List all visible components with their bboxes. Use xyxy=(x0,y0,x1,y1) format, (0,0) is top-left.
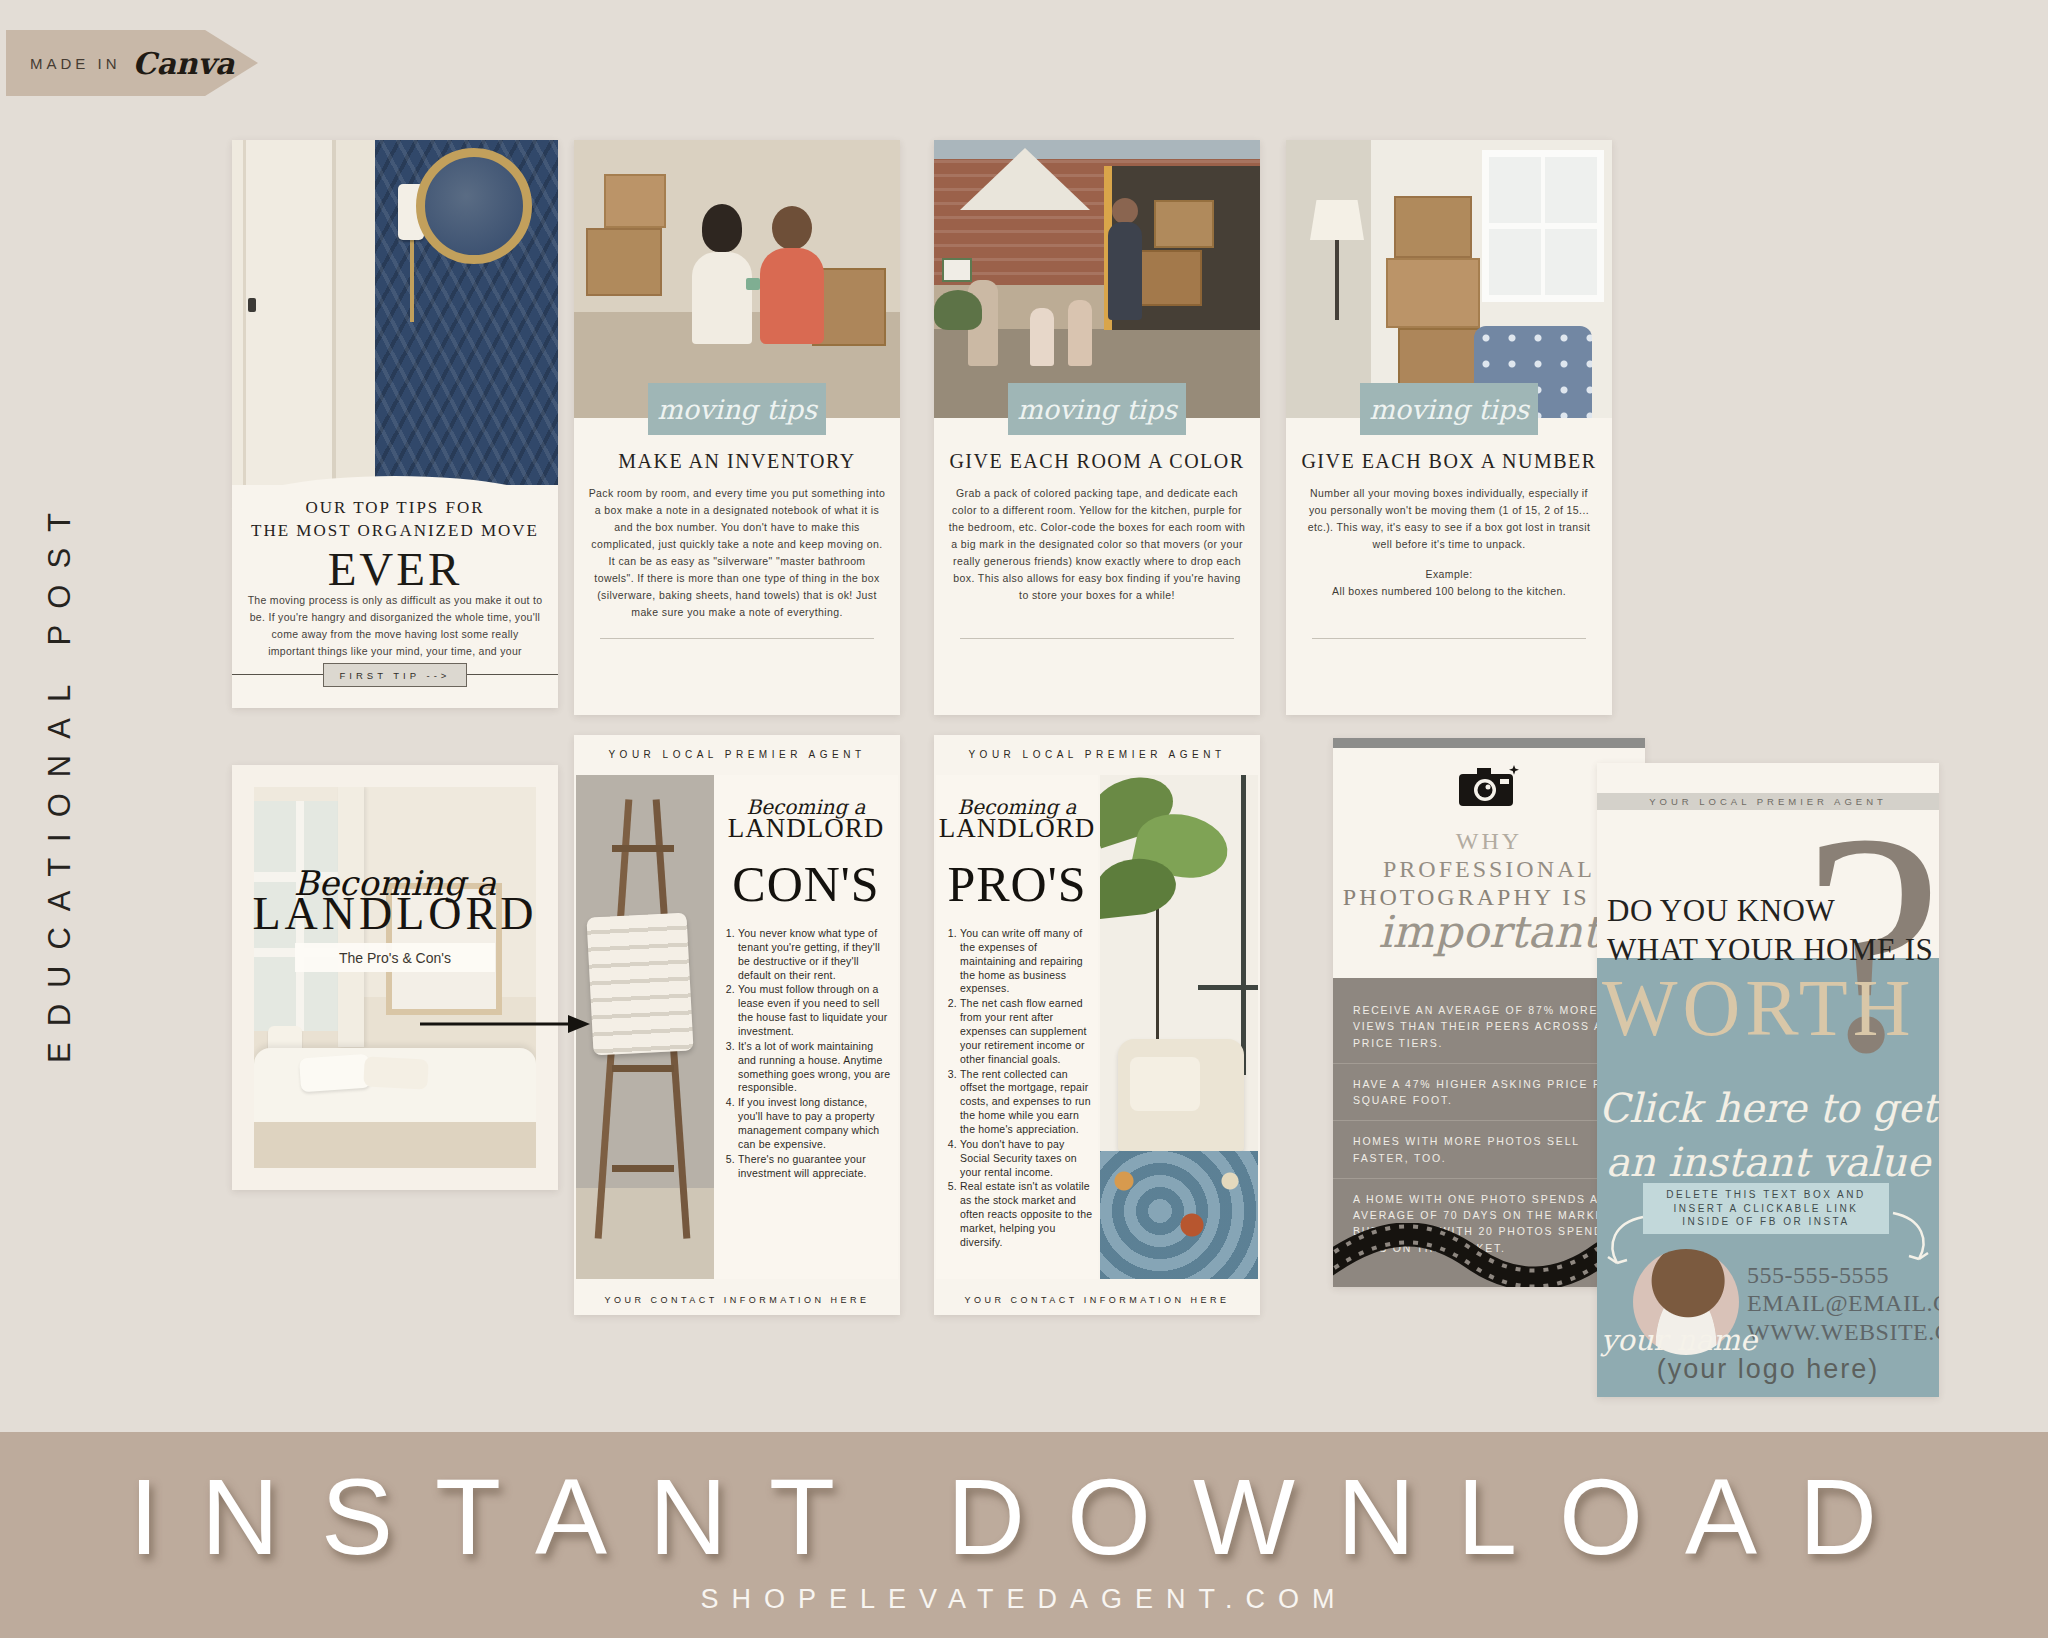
clickable-link-note: DELETE THIS TEXT BOX AND INSERT A CLICKA… xyxy=(1643,1183,1889,1234)
note-line2: INSERT A CLICKABLE LINK xyxy=(1645,1202,1887,1216)
agent-email: EMAIL@EMAIL.COM xyxy=(1747,1289,1939,1317)
note-line3: INSIDE OF FB OR INSTA xyxy=(1645,1215,1887,1229)
card-landlord-pros: YOUR LOCAL PREMIER AGENT Becoming a LAND… xyxy=(934,735,1260,1315)
card-landlord-cons: YOUR LOCAL PREMIER AGENT Becoming a LAND… xyxy=(574,735,900,1315)
striped-blanket-shape xyxy=(586,912,693,1055)
person-shape xyxy=(1112,198,1138,224)
tip-heading: MAKE AN INVENTORY xyxy=(574,450,900,473)
list-item: You don't have to pay Social Security ta… xyxy=(960,1138,1094,1180)
list-item: You must follow through on a lease even … xyxy=(738,983,894,1038)
educational-post-label: EDUCATIONAL POST xyxy=(20,375,100,1185)
couple-moving-photo xyxy=(574,140,900,418)
ladder-rung xyxy=(612,1165,674,1172)
cons-text-panel: Becoming a LANDLORD CON'S You never know… xyxy=(714,775,898,1279)
living-room-photo xyxy=(1100,775,1258,1279)
sconce-rod xyxy=(410,236,414,322)
example-label: Example: xyxy=(1300,566,1598,583)
your-name-script: your name xyxy=(1599,1323,1759,1357)
list-item: It's a lot of work maintaining and runni… xyxy=(738,1040,894,1095)
becoming-a-script: Becoming a xyxy=(232,863,558,903)
right-arrow-icon xyxy=(420,1013,590,1035)
pros-text-panel: Becoming a LANDLORD PRO'S You can write … xyxy=(936,775,1098,1279)
cushion-shape xyxy=(1130,1057,1200,1111)
card-box-number: moving tips GIVE EACH BOX A NUMBER Numbe… xyxy=(1286,140,1612,715)
pros-heading: PRO'S xyxy=(936,855,1098,913)
card-title-line2: THE MOST ORGANIZED MOVE xyxy=(232,521,558,541)
card-landlord-cover: Becoming a LANDLORD The Pro's & Con's xyxy=(232,765,558,1190)
ladder-rung xyxy=(612,845,674,852)
patterned-rug-shape xyxy=(1100,1151,1258,1279)
list-item: Real estate isn't as volatile as the sto… xyxy=(960,1180,1094,1249)
divider-line xyxy=(600,638,874,639)
box-shape xyxy=(604,174,666,228)
lamp-pole xyxy=(1335,240,1339,320)
list-item: There's no guarantee your investment wil… xyxy=(738,1153,894,1181)
tip-body-text: Grab a pack of colored packing tape, and… xyxy=(948,485,1246,604)
pros-cons-subtitle: The Pro's & Con's xyxy=(295,943,495,972)
agent-phone: 555-555-5555 xyxy=(1747,1261,1939,1289)
round-gold-mirror xyxy=(416,148,532,264)
card-home-worth: YOUR LOCAL PREMIER AGENT ? DO YOU KNOW W… xyxy=(1597,763,1939,1397)
window-frame xyxy=(1241,775,1246,1075)
premier-agent-header: YOUR LOCAL PREMIER AGENT xyxy=(934,749,1260,760)
mug-shape xyxy=(746,278,760,290)
person-shape xyxy=(1068,300,1092,366)
contact-info-footer: YOUR CONTACT INFORMATION HERE xyxy=(574,1295,900,1305)
pillow-shape xyxy=(363,1056,428,1089)
divider-line xyxy=(1312,638,1586,639)
cons-heading: CON'S xyxy=(714,855,898,913)
card-room-color: moving tips GIVE EACH ROOM A COLOR Grab … xyxy=(934,140,1260,715)
bush-shape xyxy=(934,290,982,330)
person-shape xyxy=(772,206,812,250)
contact-info-footer: YOUR CONTACT INFORMATION HERE xyxy=(934,1295,1260,1305)
curly-arrow-icon xyxy=(1601,1211,1647,1269)
person-shape xyxy=(1030,308,1054,366)
note-line1: DELETE THIS TEXT BOX AND xyxy=(1645,1188,1887,1202)
tip-body-block: Number all your moving boxes individuall… xyxy=(1300,485,1598,600)
door-knob-shape xyxy=(248,298,256,312)
person-shape xyxy=(1108,222,1142,320)
box-shape xyxy=(1132,250,1202,306)
cta-script-line1[interactable]: Click here to get xyxy=(1597,1085,1939,1131)
box-shape xyxy=(1394,196,1472,258)
agent-website: WWW.WEBSITE.COM xyxy=(1747,1318,1939,1346)
interior-photo xyxy=(232,140,558,485)
premier-agent-header: YOUR LOCAL PREMIER AGENT xyxy=(574,749,900,760)
person-shape xyxy=(702,204,742,252)
instant-download-title: INSTANT DOWNLOAD xyxy=(0,1454,2048,1579)
instant-download-bar: INSTANT DOWNLOAD SHOPELEVATEDAGENT.COM xyxy=(0,1432,2048,1638)
cons-list: You never know what type of tenant you'r… xyxy=(722,927,894,1181)
becoming-a-script: Becoming a xyxy=(936,795,1098,819)
door-shape xyxy=(232,140,375,485)
list-item: The net cash flow earned from your rent … xyxy=(960,997,1094,1066)
plant-stem xyxy=(1156,895,1159,1055)
moving-tips-badge: moving tips xyxy=(648,383,826,435)
pros-list: You can write off many of the expenses o… xyxy=(944,927,1094,1251)
example-text: All boxes numbered 100 belong to the kit… xyxy=(1300,583,1598,600)
card-organized-move: OUR TOP TIPS FOR THE MOST ORGANIZED MOVE… xyxy=(232,140,558,708)
agent-contact-block: 555-555-5555 EMAIL@EMAIL.COM WWW.WEBSITE… xyxy=(1747,1261,1939,1346)
made-in-label: MADE IN xyxy=(30,55,121,72)
tip-heading: GIVE EACH ROOM A COLOR xyxy=(934,450,1260,473)
card-make-inventory: moving tips MAKE AN INVENTORY Pack room … xyxy=(574,140,900,715)
moving-tips-badge: moving tips xyxy=(1360,383,1538,435)
list-item: The rent collected can offset the mortga… xyxy=(960,1068,1094,1137)
sold-sign-shape xyxy=(942,258,972,282)
person-shape xyxy=(692,252,752,344)
box-shape xyxy=(1154,200,1214,248)
ladder-rung xyxy=(612,1065,674,1072)
camera-icon xyxy=(1457,762,1521,812)
person-shape xyxy=(760,248,824,344)
lamp-shape xyxy=(1310,200,1364,240)
list-item: If you invest long distance, you'll have… xyxy=(738,1096,894,1151)
cta-script-line2[interactable]: an instant value xyxy=(1597,1139,1939,1185)
card-title-line1: OUR TOP TIPS FOR xyxy=(232,498,558,518)
pillow-shape xyxy=(299,1054,371,1093)
bedroom-photo xyxy=(254,787,536,1168)
blanket-shape xyxy=(254,1122,536,1168)
becoming-a-script: Becoming a xyxy=(714,795,898,819)
tip-body-text: Pack room by room, and every time you pu… xyxy=(588,485,886,621)
box-shape xyxy=(1386,258,1480,328)
worth-word: WORTH xyxy=(1602,963,1915,1054)
canva-logo: Canva xyxy=(133,46,235,81)
card-title-big: EVER xyxy=(232,542,558,596)
listing-collage: MADE IN Canva EDUCATIONAL POST OUR TOP T… xyxy=(0,0,2048,1638)
question-line1: DO YOU KNOW xyxy=(1607,893,1835,929)
list-item: You never know what type of tenant you'r… xyxy=(738,927,894,982)
divider-line xyxy=(960,638,1234,639)
first-tip-button[interactable]: FIRST TIP --> xyxy=(323,663,467,687)
ladder-photo xyxy=(576,775,714,1279)
curly-arrow-icon xyxy=(1889,1207,1935,1265)
made-in-canva-badge: MADE IN Canva xyxy=(6,30,258,96)
window-sill xyxy=(1198,985,1258,990)
tip-heading: GIVE EACH BOX A NUMBER xyxy=(1286,450,1612,473)
window-shape xyxy=(1482,150,1604,302)
list-item: You can write off many of the expenses o… xyxy=(960,927,1094,996)
moving-truck-photo xyxy=(934,140,1260,418)
box-shape xyxy=(586,228,662,296)
packed-room-photo xyxy=(1286,140,1612,418)
moving-tips-badge: moving tips xyxy=(1008,383,1186,435)
gray-top-bar xyxy=(1333,738,1645,748)
shop-website: SHOPELEVATEDAGENT.COM xyxy=(0,1584,2048,1615)
logo-placeholder: (your logo here) xyxy=(1597,1354,1939,1385)
tip-body-text: Number all your moving boxes individuall… xyxy=(1300,485,1598,553)
